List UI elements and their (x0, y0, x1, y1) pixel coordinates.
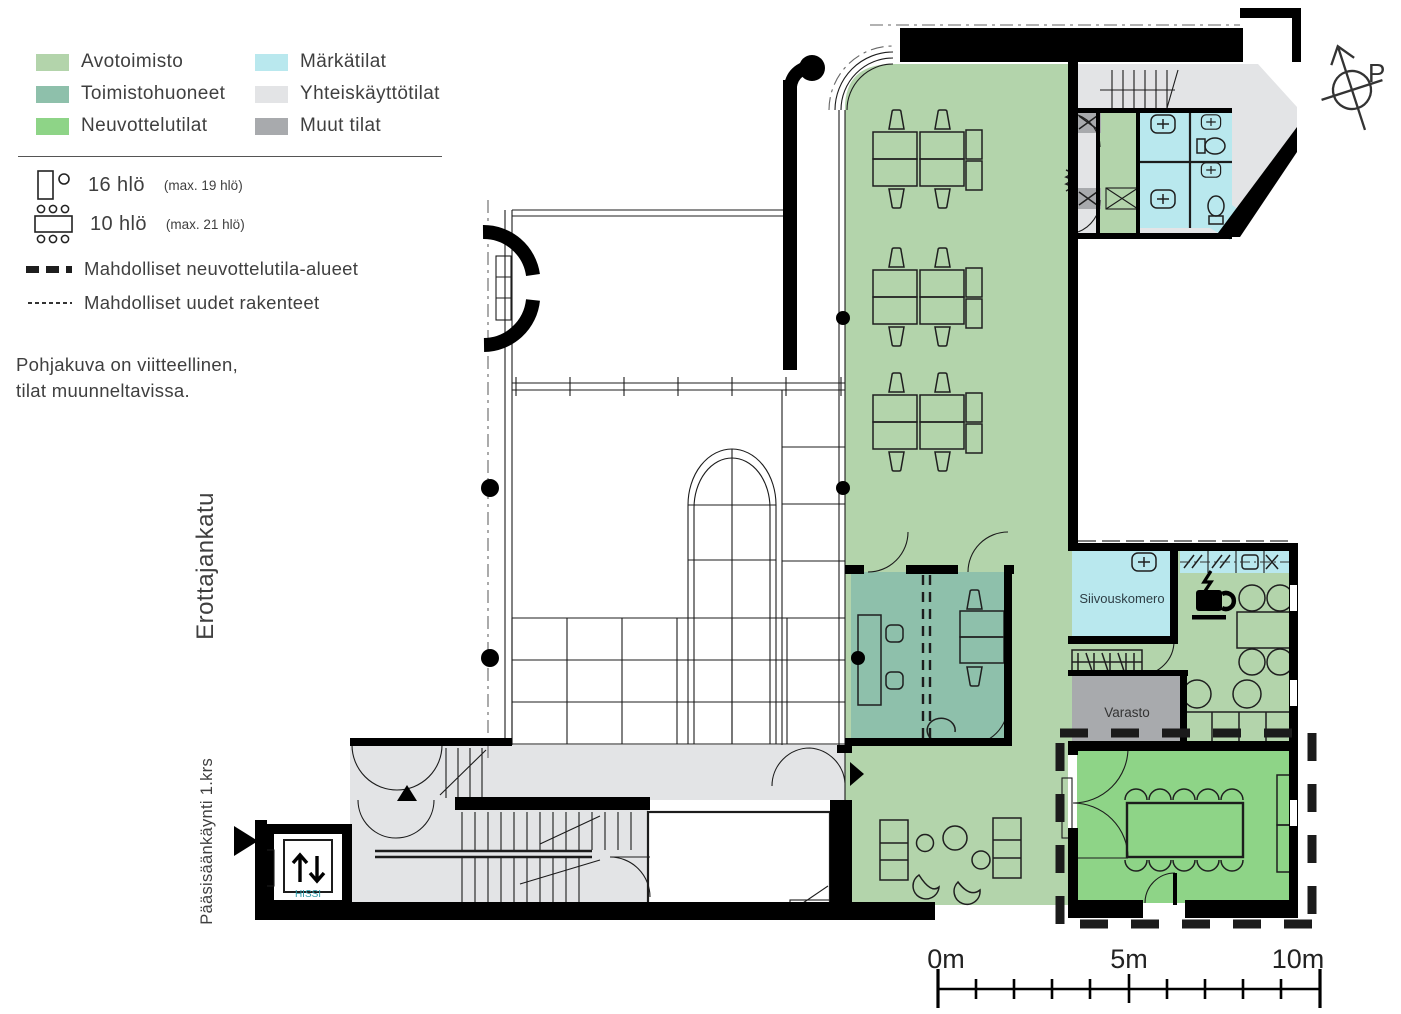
color-swatch (36, 86, 69, 103)
capacity-max-label: (max. 19 hlö) (164, 178, 243, 193)
legend-item-yhteiskayttotilat: Yhteiskäyttötilat (255, 83, 440, 105)
dashed-line-label: Mahdolliset neuvottelutila-alueet (84, 258, 358, 280)
storage-label: Varasto (1104, 705, 1150, 720)
capacity-row-10: 10 hlö (max. 21 hlö) (30, 203, 245, 245)
cleaning-closet-label: Siivouskomero (1079, 591, 1164, 606)
scale-end-label: 10m (1272, 944, 1325, 974)
legend-label: Avotoimisto (81, 51, 183, 73)
legend-item-muut-tilat: Muut tilat (255, 115, 381, 137)
floor-plan-page: HISSI (0, 0, 1401, 1014)
scale-mid-label: 5m (1110, 944, 1148, 974)
legend-dotted-line: Mahdolliset uudet rakenteet (28, 292, 319, 314)
legend-item-toimistohuoneet: Toimistohuoneet (36, 83, 225, 105)
meeting-room-area (1077, 751, 1289, 903)
legend-label: Muut tilat (300, 115, 381, 137)
legend-dashed-line: Mahdolliset neuvottelutila-alueet (26, 258, 358, 280)
street-label: Erottajankatu (192, 492, 220, 640)
color-swatch (255, 86, 288, 103)
capacity-label: 10 hlö (90, 213, 147, 236)
note-line-1: Pohjakuva on viitteellinen, (16, 352, 238, 378)
color-swatch (36, 118, 69, 135)
legend-label: Toimistohuoneet (81, 83, 225, 105)
corridor-area (350, 745, 845, 800)
capacity-max-label: (max. 21 hlö) (166, 217, 245, 232)
scale-bar: 0m 5m 10m (927, 944, 1324, 1008)
color-swatch (255, 118, 288, 135)
capacity-label: 16 hlö (88, 174, 145, 197)
color-swatch (36, 54, 69, 71)
meeting-table-capacity-icon (30, 203, 78, 245)
legend-label: Märkätilat (300, 51, 386, 73)
desk-capacity-icon (34, 168, 76, 202)
bay-window (483, 232, 533, 345)
dotted-line-swatch (28, 302, 72, 304)
stairwell-area (350, 800, 648, 905)
legend-item-neuvottelutilat: Neuvottelutilat (36, 115, 207, 137)
open-office-area (845, 64, 1068, 905)
legend-label: Neuvottelutilat (81, 115, 207, 137)
legend-item-markatilat: Märkätilat (255, 51, 386, 73)
legend-label: Yhteiskäyttötilat (300, 83, 440, 105)
dotted-line-label: Mahdolliset uudet rakenteet (84, 292, 319, 314)
scale-start-label: 0m (927, 944, 965, 974)
elevator-label: HISSI (295, 889, 321, 900)
north-compass-icon: P (1307, 36, 1395, 139)
legend-divider (18, 156, 442, 157)
capacity-row-16: 16 hlö (max. 19 hlö) (34, 168, 243, 202)
entrance-arrow-icon (234, 826, 258, 856)
entrance-label: Pääsisäänkäynti 1.krs (198, 758, 217, 925)
elevator: HISSI (234, 824, 352, 910)
legend-item-avotoimisto: Avotoimisto (36, 51, 183, 73)
color-swatch (255, 54, 288, 71)
compass-label: P (1368, 58, 1385, 88)
note-line-2: tilat muunneltavissa. (16, 378, 238, 404)
wc-vestibule (1100, 112, 1138, 237)
disclaimer-note: Pohjakuva on viitteellinen, tilat muunne… (16, 352, 238, 403)
dashed-line-swatch (26, 266, 72, 273)
